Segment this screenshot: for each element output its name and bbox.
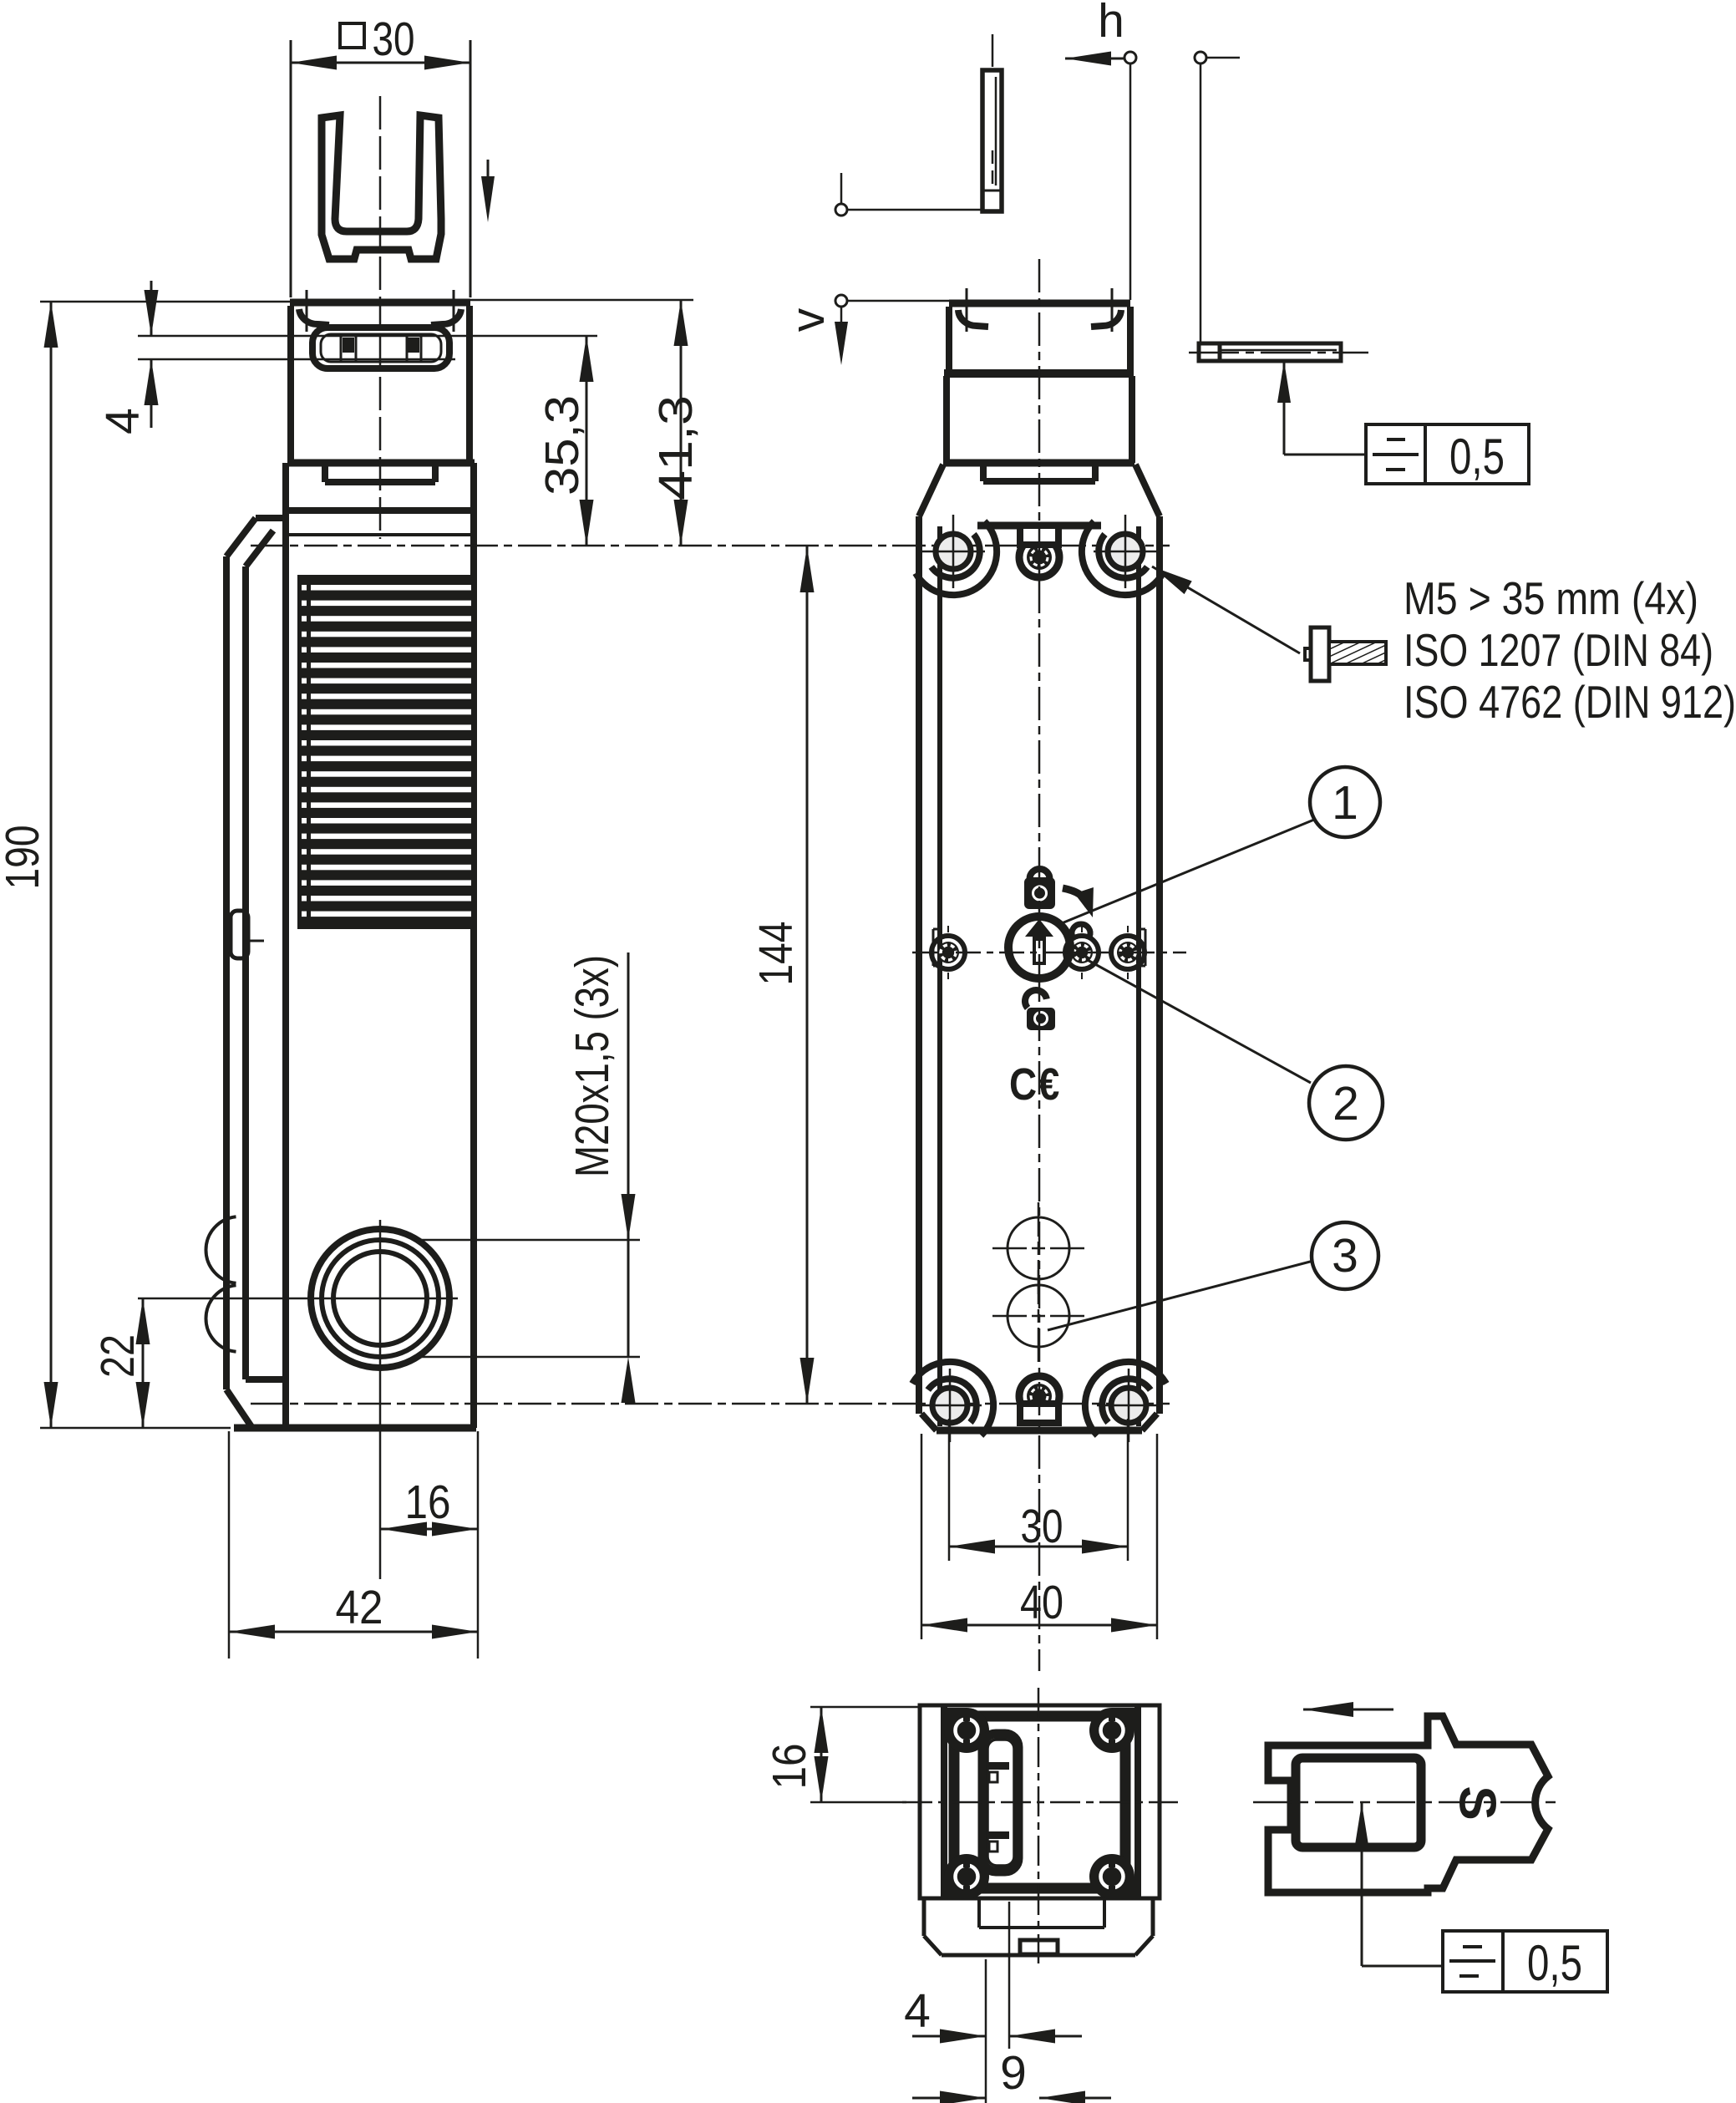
svg-text:4: 4 [904, 1984, 931, 2038]
svg-text:1: 1 [1332, 776, 1358, 830]
svg-text:16: 16 [405, 1476, 451, 1529]
svg-text:16: 16 [763, 1744, 816, 1790]
svg-text:v: v [781, 307, 835, 332]
svg-text:ISO 4762 (DIN 912): ISO 4762 (DIN 912) [1404, 676, 1736, 728]
svg-text:22: 22 [91, 1334, 145, 1378]
svg-text:ISO 1207 (DIN 84): ISO 1207 (DIN 84) [1404, 624, 1713, 676]
svg-text:M20x1,5 (3x): M20x1,5 (3x) [566, 955, 619, 1177]
svg-text:M5 > 35 mm (4x): M5 > 35 mm (4x) [1404, 572, 1698, 624]
svg-text:0,5: 0,5 [1527, 1935, 1582, 1991]
svg-text:h: h [1098, 0, 1124, 48]
svg-text:40: 40 [1020, 1576, 1063, 1629]
svg-text:144: 144 [749, 922, 803, 986]
svg-text:2: 2 [1332, 1077, 1359, 1130]
svg-text:190: 190 [0, 825, 49, 890]
svg-text:9: 9 [1000, 2046, 1027, 2100]
svg-text:C€: C€ [1009, 1059, 1061, 1110]
svg-text:35,3: 35,3 [536, 395, 589, 495]
svg-text:4: 4 [96, 408, 150, 434]
svg-text:0,5: 0,5 [1449, 429, 1505, 485]
svg-text:42: 42 [336, 1581, 383, 1634]
svg-text:30: 30 [1021, 1500, 1063, 1553]
svg-text:3: 3 [1332, 1229, 1358, 1283]
svg-text:30: 30 [373, 13, 415, 66]
svg-text:41,3: 41,3 [649, 395, 703, 500]
